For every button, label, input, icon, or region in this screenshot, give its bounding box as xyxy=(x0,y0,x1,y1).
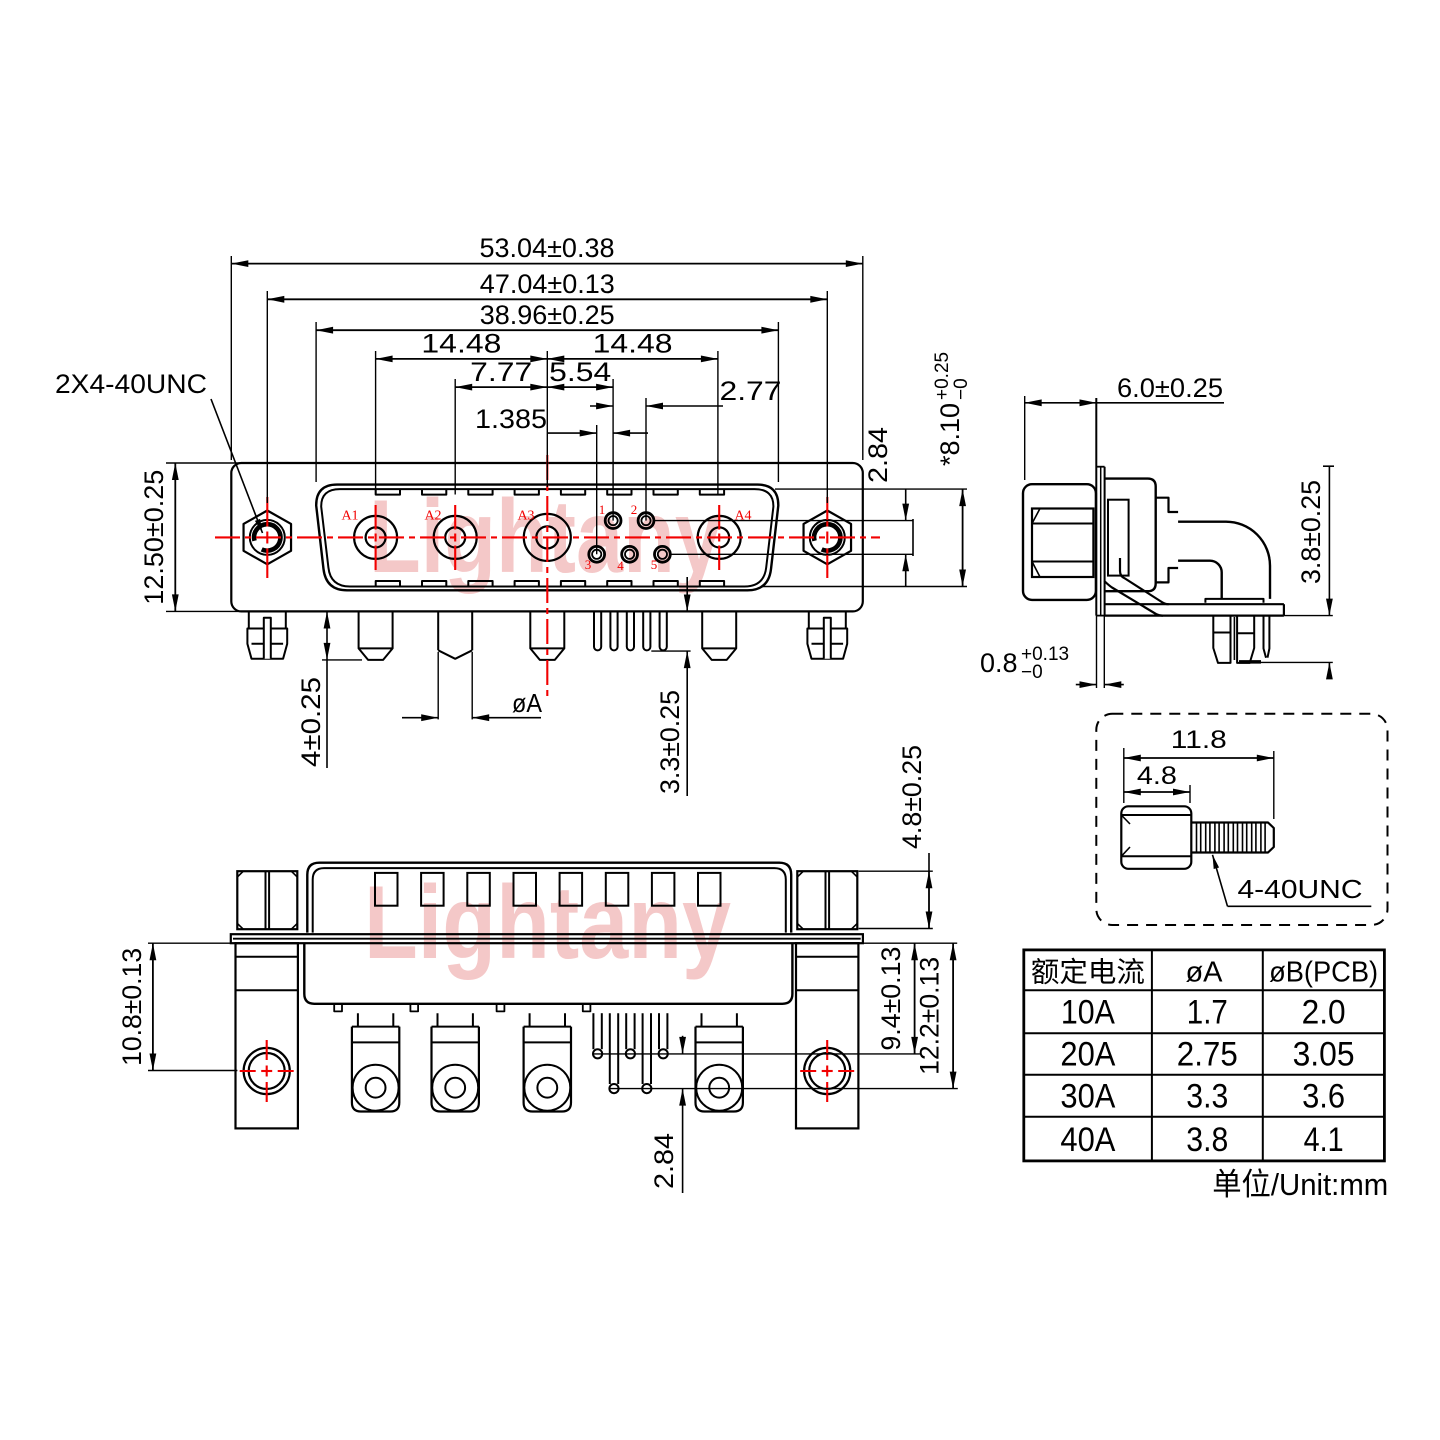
svg-text:øB(PCB): øB(PCB) xyxy=(1269,957,1378,989)
svg-text:10A: 10A xyxy=(1061,994,1115,1032)
svg-text:14.48: 14.48 xyxy=(593,329,673,359)
svg-text:3.6: 3.6 xyxy=(1302,1078,1345,1116)
svg-text:−0: −0 xyxy=(1021,662,1043,683)
svg-text:单位/Unit:mm: 单位/Unit:mm xyxy=(1212,1167,1388,1202)
svg-text:øA: øA xyxy=(512,688,543,718)
svg-text:4-40UNC: 4-40UNC xyxy=(1238,874,1363,904)
svg-text:7.77: 7.77 xyxy=(470,357,532,387)
svg-text:38.96±0.25: 38.96±0.25 xyxy=(480,300,615,330)
svg-text:4: 4 xyxy=(617,558,624,573)
svg-text:4.1: 4.1 xyxy=(1304,1121,1344,1159)
svg-text:3: 3 xyxy=(585,557,592,572)
svg-text:5.54: 5.54 xyxy=(549,357,611,387)
svg-text:3.05: 3.05 xyxy=(1293,1036,1355,1074)
svg-text:47.04±0.13: 47.04±0.13 xyxy=(480,269,615,299)
svg-text:9.4±0.13: 9.4±0.13 xyxy=(876,947,906,1051)
svg-text:A1: A1 xyxy=(341,509,358,524)
svg-text:2X4-40UNC: 2X4-40UNC xyxy=(55,369,207,399)
svg-text:53.04±0.38: 53.04±0.38 xyxy=(480,233,615,263)
svg-text:12.50±0.25: 12.50±0.25 xyxy=(139,470,169,605)
svg-text:Lightany: Lightany xyxy=(364,865,731,981)
svg-text:11.8: 11.8 xyxy=(1171,726,1227,754)
svg-text:5: 5 xyxy=(651,557,658,572)
svg-text:+0.25: +0.25 xyxy=(932,352,953,400)
svg-text:1.385: 1.385 xyxy=(475,404,547,434)
svg-text:3.8±0.25: 3.8±0.25 xyxy=(1296,480,1326,584)
svg-text:3.3±0.25: 3.3±0.25 xyxy=(655,690,685,794)
svg-text:20A: 20A xyxy=(1060,1036,1115,1074)
svg-text:4.8±0.25: 4.8±0.25 xyxy=(897,745,927,849)
svg-text:0.8: 0.8 xyxy=(980,648,1018,678)
svg-text:12.2±0.13: 12.2±0.13 xyxy=(915,957,945,1075)
svg-text:2.84: 2.84 xyxy=(649,1133,679,1189)
svg-text:3.8: 3.8 xyxy=(1186,1121,1228,1159)
svg-text:40A: 40A xyxy=(1060,1121,1115,1159)
svg-text:4±0.25: 4±0.25 xyxy=(296,677,326,767)
svg-text:4.8: 4.8 xyxy=(1137,762,1177,790)
svg-text:3.3: 3.3 xyxy=(1186,1078,1228,1116)
svg-text:A2: A2 xyxy=(424,509,441,524)
svg-text:2.77: 2.77 xyxy=(720,376,782,406)
svg-text:6.0±0.25: 6.0±0.25 xyxy=(1117,373,1223,403)
svg-text:2.84: 2.84 xyxy=(863,427,893,483)
svg-text:额定电流: 额定电流 xyxy=(1031,957,1145,988)
svg-text:−0: −0 xyxy=(951,378,972,400)
svg-text:1.7: 1.7 xyxy=(1187,994,1228,1032)
svg-text:øA: øA xyxy=(1186,957,1224,989)
svg-text:30A: 30A xyxy=(1060,1078,1115,1116)
svg-text:2.75: 2.75 xyxy=(1177,1036,1238,1074)
svg-text:14.48: 14.48 xyxy=(421,329,501,359)
svg-text:10.8±0.13: 10.8±0.13 xyxy=(117,948,147,1066)
svg-text:2.0: 2.0 xyxy=(1302,994,1346,1032)
svg-text:*8.10: *8.10 xyxy=(935,403,965,466)
svg-text:1: 1 xyxy=(599,502,606,517)
svg-text:A3: A3 xyxy=(517,509,534,524)
svg-text:2: 2 xyxy=(631,502,638,517)
